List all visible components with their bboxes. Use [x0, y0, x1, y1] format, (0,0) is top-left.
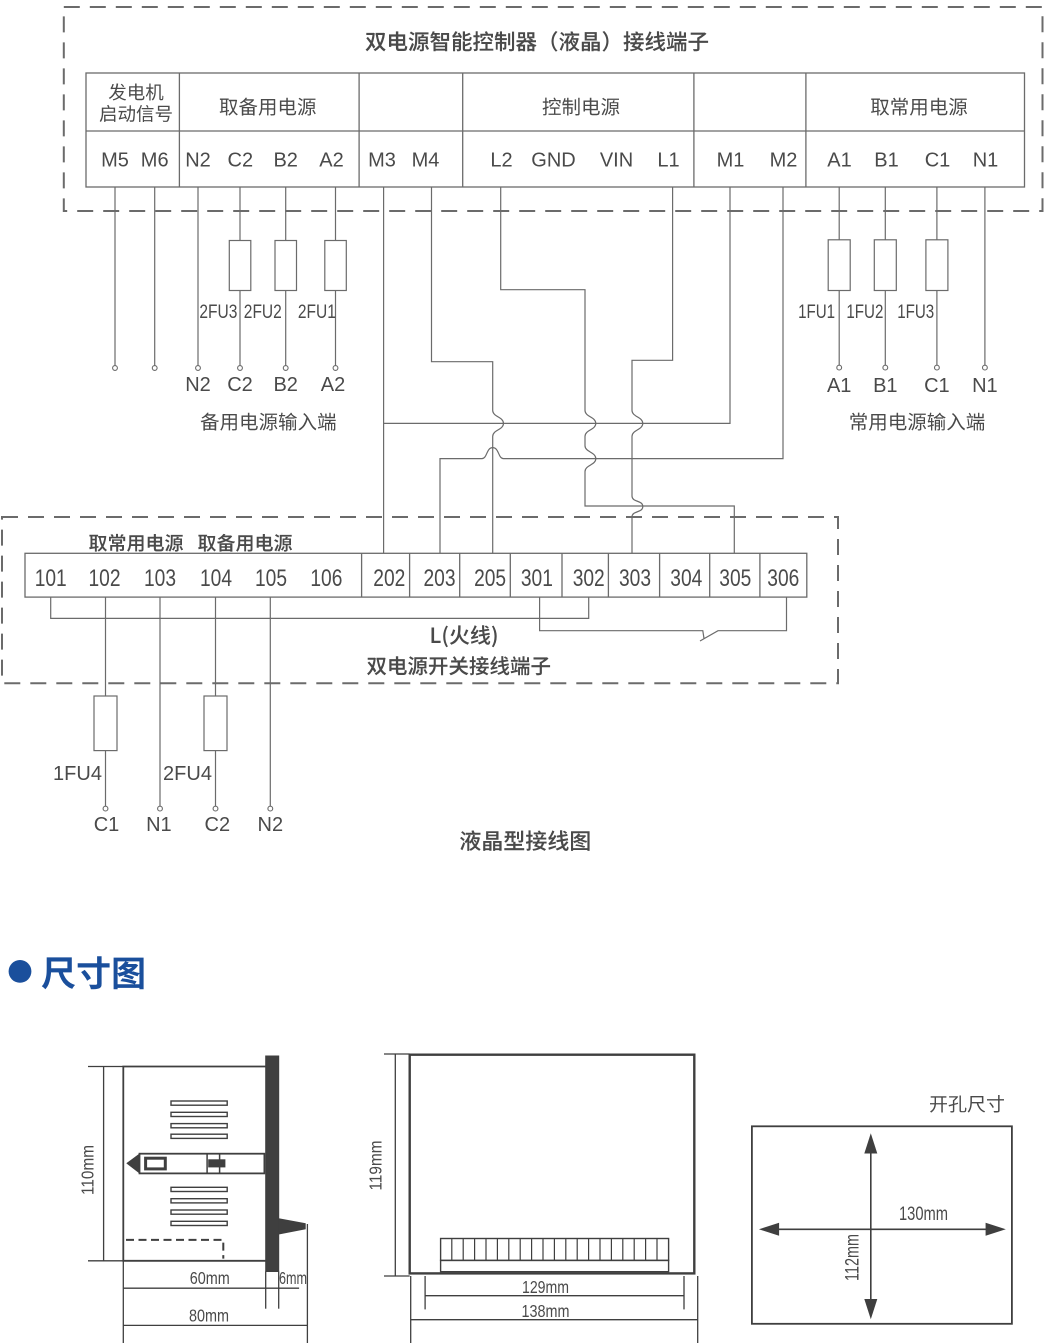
svg-text:202: 202 [373, 565, 405, 592]
svg-text:L2: L2 [490, 150, 512, 172]
svg-text:GND: GND [531, 150, 575, 172]
svg-text:105: 105 [255, 565, 287, 592]
svg-text:M4: M4 [412, 150, 440, 172]
svg-text:B1: B1 [874, 150, 898, 172]
svg-text:306: 306 [767, 565, 799, 592]
svg-text:B1: B1 [873, 375, 897, 397]
svg-text:A1: A1 [827, 375, 851, 397]
svg-text:N2: N2 [185, 374, 211, 396]
svg-text:103: 103 [144, 565, 176, 592]
svg-text:112mm: 112mm [843, 1234, 864, 1281]
svg-text:2FU3: 2FU3 [199, 302, 237, 323]
svg-text:301: 301 [521, 565, 553, 592]
svg-text:N2: N2 [258, 814, 284, 836]
svg-text:L1: L1 [657, 150, 679, 172]
svg-text:N2: N2 [185, 150, 211, 172]
svg-text:104: 104 [200, 565, 232, 592]
svg-text:C1: C1 [925, 150, 951, 172]
svg-text:C2: C2 [227, 374, 253, 396]
svg-text:302: 302 [573, 565, 605, 592]
svg-text:205: 205 [474, 565, 506, 592]
svg-text:101: 101 [35, 565, 67, 592]
svg-text:2FU1: 2FU1 [298, 302, 336, 323]
svg-text:M1: M1 [717, 150, 745, 172]
svg-text:C1: C1 [94, 814, 120, 836]
svg-text:106: 106 [310, 565, 342, 592]
svg-text:1FU3: 1FU3 [897, 302, 934, 323]
svg-text:60mm: 60mm [190, 1268, 230, 1288]
svg-text:M2: M2 [770, 150, 798, 172]
svg-text:2FU4: 2FU4 [163, 763, 212, 785]
svg-text:129mm: 129mm [522, 1277, 569, 1297]
svg-text:6mm: 6mm [279, 1268, 307, 1288]
svg-text:B2: B2 [273, 374, 297, 396]
svg-text:1FU1: 1FU1 [798, 302, 835, 323]
svg-text:110mm: 110mm [78, 1145, 98, 1195]
svg-text:203: 203 [424, 565, 456, 592]
svg-text:A2: A2 [319, 150, 343, 172]
svg-text:B2: B2 [273, 150, 297, 172]
svg-text:1FU2: 1FU2 [846, 302, 883, 323]
svg-text:2FU2: 2FU2 [244, 302, 282, 323]
svg-text:C2: C2 [228, 150, 254, 172]
svg-text:A1: A1 [827, 150, 851, 172]
svg-text:VIN: VIN [600, 150, 633, 172]
svg-text:119mm: 119mm [366, 1141, 386, 1191]
svg-text:M3: M3 [368, 150, 396, 172]
svg-text:N1: N1 [972, 375, 998, 397]
svg-text:A2: A2 [321, 374, 345, 396]
svg-text:M6: M6 [141, 150, 169, 172]
svg-text:303: 303 [619, 565, 651, 592]
svg-text:138mm: 138mm [522, 1301, 570, 1321]
svg-text:N1: N1 [146, 814, 172, 836]
svg-text:N1: N1 [973, 150, 999, 172]
svg-text:102: 102 [89, 565, 121, 592]
svg-text:C2: C2 [205, 814, 231, 836]
svg-text:130mm: 130mm [899, 1204, 948, 1225]
svg-text:M5: M5 [101, 150, 129, 172]
svg-text:1FU4: 1FU4 [53, 763, 102, 785]
svg-text:304: 304 [670, 565, 702, 592]
svg-text:C1: C1 [924, 375, 950, 397]
svg-text:80mm: 80mm [189, 1306, 229, 1326]
svg-text:305: 305 [719, 565, 751, 592]
